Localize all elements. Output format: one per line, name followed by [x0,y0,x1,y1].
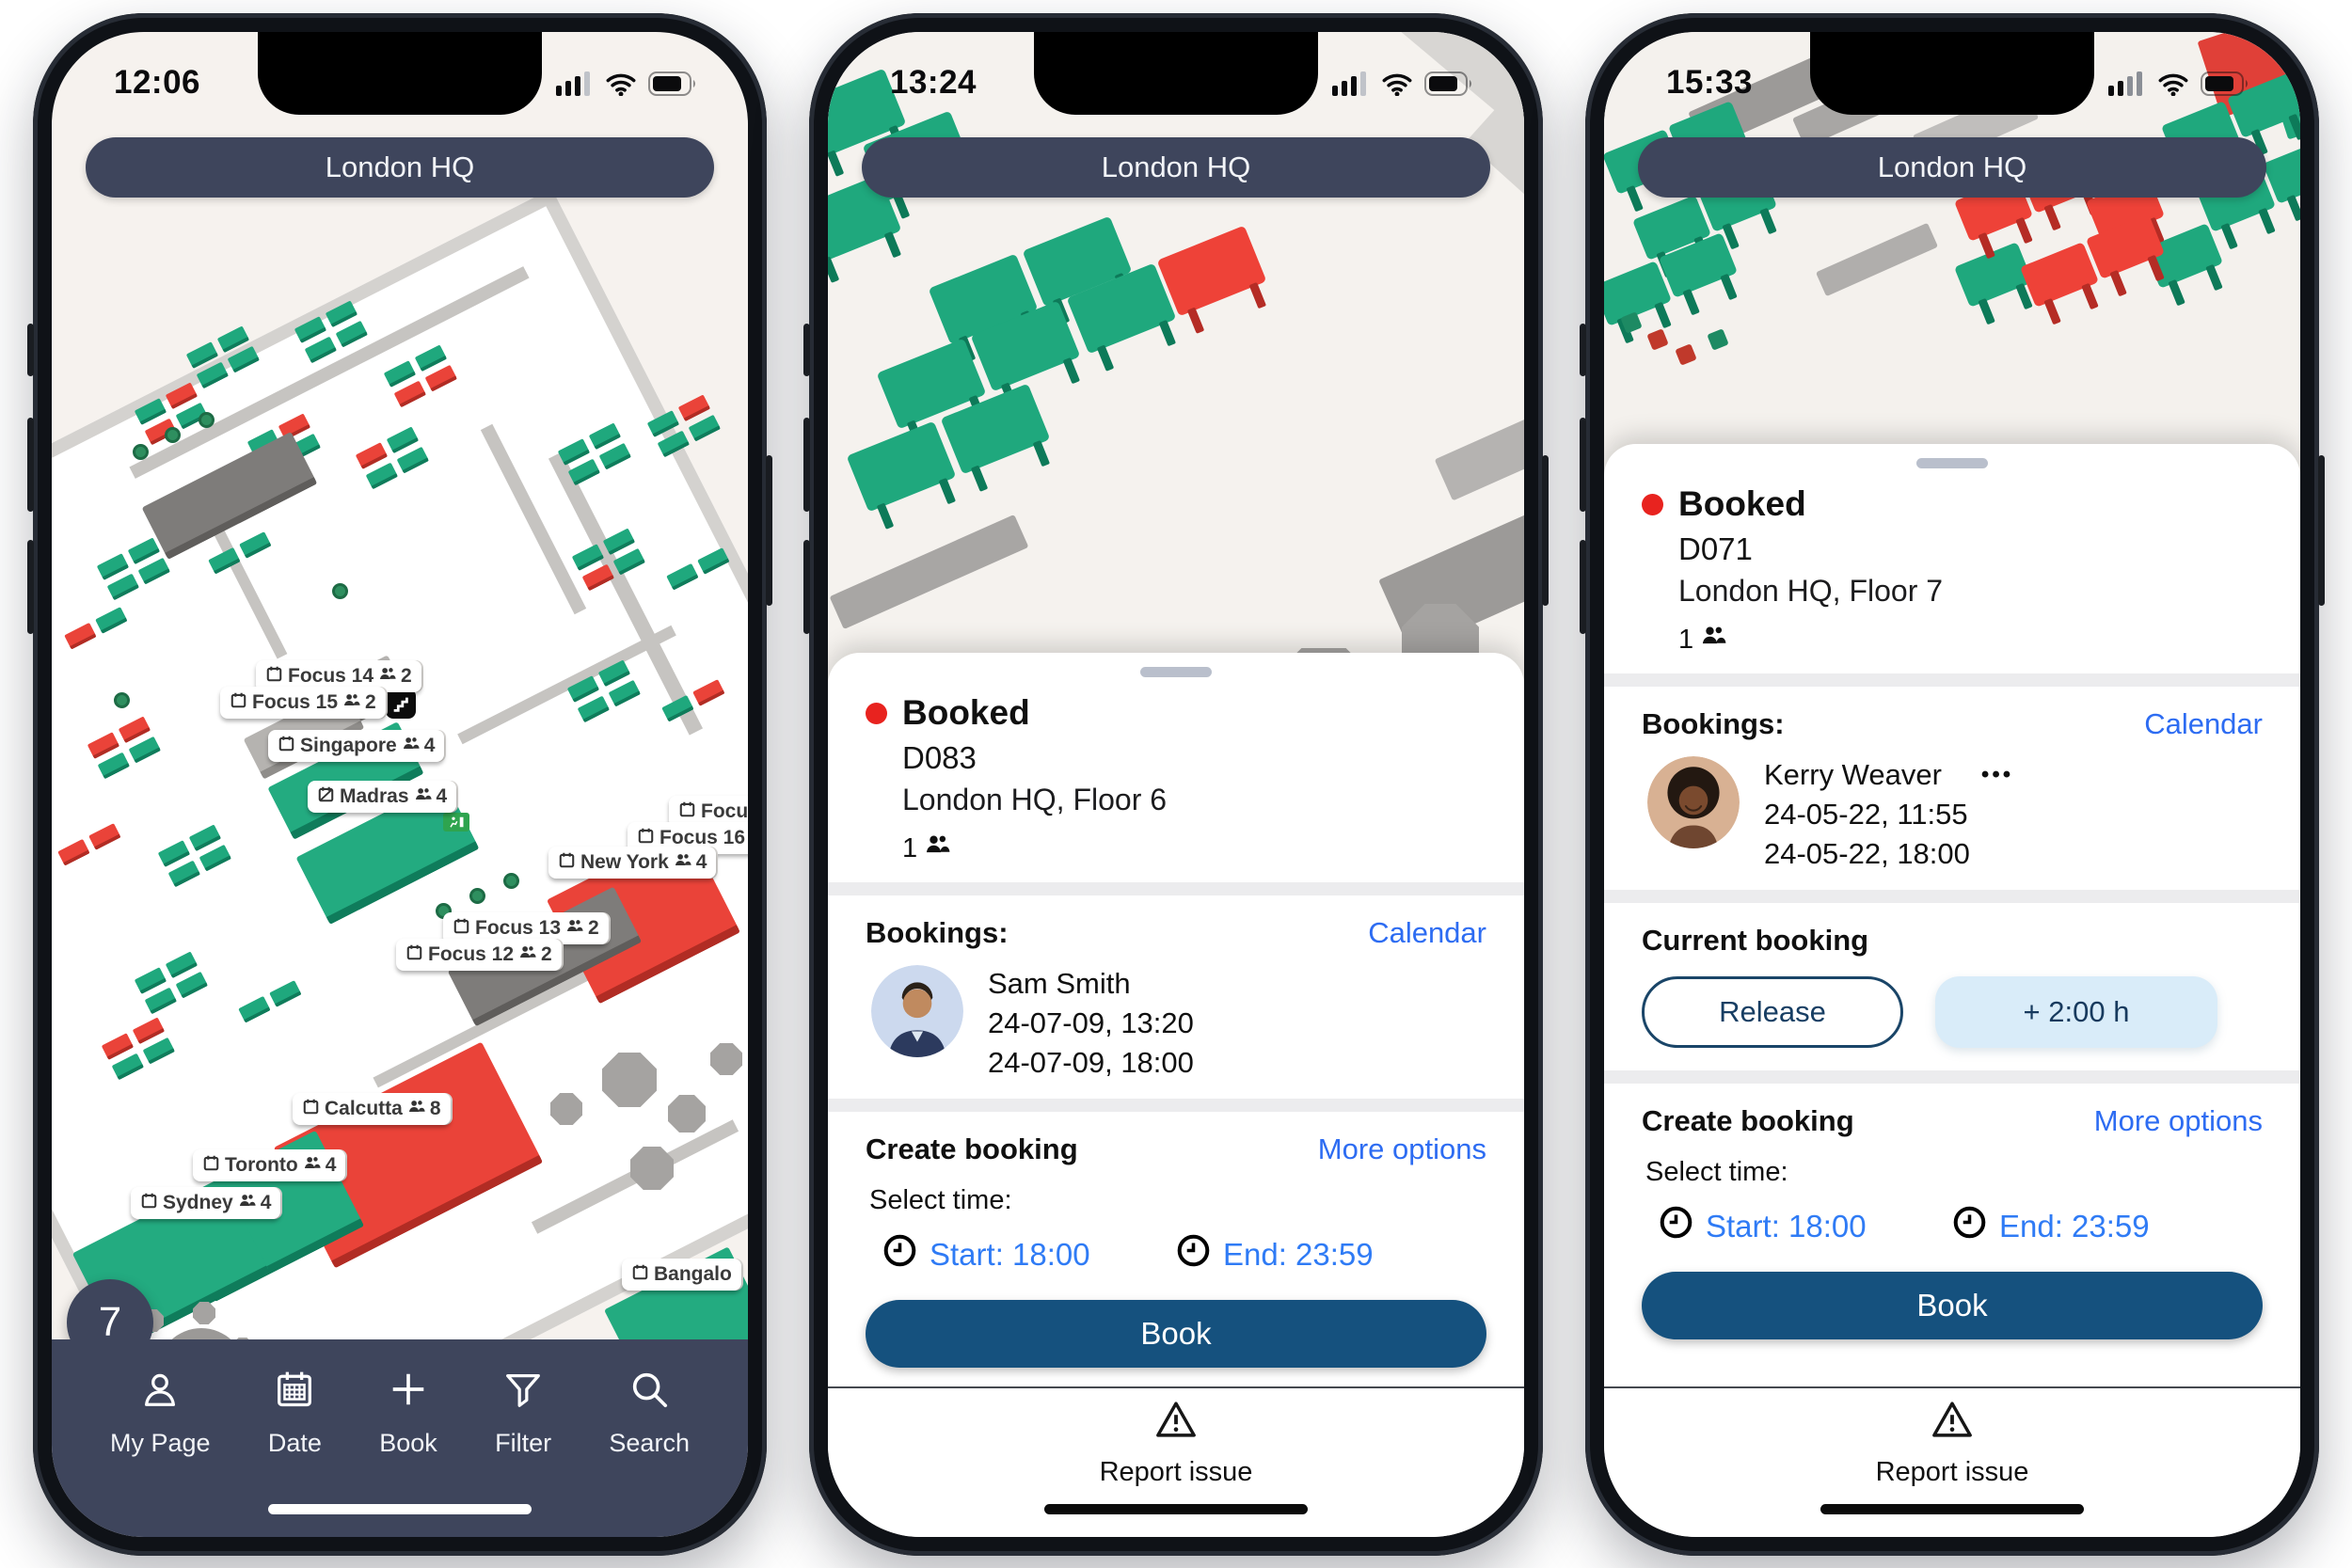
battery-icon [2201,71,2251,101]
volume-up-button [803,418,810,512]
map-label-bangalo[interactable]: Bangalo [622,1259,741,1291]
room-name: Calcutta [325,1098,403,1120]
map-label-focus-12[interactable]: Focus 122 [396,939,562,971]
room-name: Bangalo [654,1263,732,1286]
warning-icon [1154,1398,1198,1446]
section-divider [1604,673,2300,687]
home-indicator[interactable] [1044,1504,1308,1514]
room-name: Madras [340,785,409,808]
calendar-icon [230,691,247,715]
release-button[interactable]: Release [1642,976,1903,1048]
chair [1707,328,1728,350]
nav-item-book[interactable]: Book [379,1368,437,1458]
people-icon [674,851,691,875]
battery-icon [1424,71,1475,101]
plant [503,873,519,889]
plant [114,692,130,708]
section-divider [828,1099,1524,1112]
plant [199,412,215,428]
people-icon [924,832,950,865]
desk[interactable] [366,463,398,490]
plant [165,427,181,443]
room-capacity: 4 [424,735,436,757]
create-booking-section: Create booking More options Select time:… [828,1112,1524,1368]
room-capacity: 4 [696,851,707,874]
mute-switch [1580,324,1586,376]
create-booking-title: Create booking [1642,1104,1854,1138]
desk[interactable] [613,548,645,576]
status-bar: 15:33 [1604,32,2300,135]
extend-2h-button[interactable]: + 2:00 h [1935,976,2217,1048]
desk-capacity: 1 [1642,623,2263,657]
room-name: Sydney [163,1192,233,1214]
map-label-toronto[interactable]: Toronto4 [193,1149,345,1181]
screenshot-stage: Focus 142Focus 152Singapore4Madras4Focus… [0,0,2352,1568]
people-icon [342,691,360,715]
status-dot [866,703,887,724]
calendar-icon [265,665,283,689]
power-button [766,455,772,606]
bookings-section: Bookings: Calendar Kerry Weaver ••• 24-0… [1604,687,2300,890]
nav-label: Book [379,1429,437,1458]
bench [1816,223,1938,296]
room-capacity: 4 [437,785,448,808]
floorplan-map[interactable]: Focus 142Focus 152Singapore4Madras4Focus… [52,32,748,1537]
desk[interactable] [689,415,721,442]
calendar-icon [558,851,576,875]
section-divider [828,882,1524,895]
calendar-icon [631,1263,649,1287]
signal-icon [556,71,594,101]
location-pill[interactable]: London HQ [86,137,714,198]
desk[interactable] [1157,226,1267,317]
status-label: Booked [902,693,1030,733]
desk[interactable] [176,972,208,999]
calendar-icon [302,1098,320,1121]
clock-icon [1659,1205,1693,1247]
emergency-exit-icon [443,813,469,832]
nav-item-date[interactable]: Date [268,1368,322,1458]
end-time-picker[interactable]: End: 23:59 [1952,1205,2263,1247]
desk[interactable] [578,696,610,723]
desk-details-sheet: Booked D083 London HQ, Floor 6 1 Booking… [828,653,1524,1537]
nav-item-my-page[interactable]: My Page [110,1368,211,1458]
calendar-crossed-icon [317,785,335,809]
map-label-new-york[interactable]: New York4 [548,847,716,879]
volume-up-button [27,418,34,512]
more-options-link[interactable]: More options [1318,1132,1486,1166]
volume-down-button [803,540,810,634]
iphone-mockup-2: Booked D083 London HQ, Floor 6 1 Booking… [809,13,1543,1556]
current-booking-section: Current booking Release + 2:00 h [1604,903,2300,1070]
mute-switch [803,324,810,376]
room-capacity: 8 [430,1098,441,1120]
desk-capacity: 1 [866,832,1486,865]
calendar-icon [278,735,295,758]
search-icon [628,1368,671,1418]
chair [1675,343,1696,365]
desk[interactable] [168,861,200,888]
plus-icon [387,1368,430,1418]
drag-handle[interactable] [1916,458,1988,468]
desk-location: London HQ, Floor 7 [1642,574,2263,609]
bookings-title: Bookings: [1642,707,1785,741]
screen-3: Booked D071 London HQ, Floor 7 1 Booking… [1604,32,2300,1537]
desk[interactable] [2020,242,2099,308]
calendar-icon [273,1368,316,1418]
desk[interactable] [107,574,139,601]
desk[interactable] [394,381,426,408]
map-label-madras[interactable]: Madras4 [308,781,456,813]
iphone-mockup-1: Focus 142Focus 152Singapore4Madras4Focus… [33,13,767,1556]
people-icon [402,735,420,758]
desk[interactable] [143,1037,175,1065]
person-icon [138,1368,182,1418]
desk-status-section: Booked D083 London HQ, Floor 6 1 [828,677,1524,882]
desk[interactable] [582,564,614,592]
clock-icon [882,1233,917,1275]
stairs-icon [386,689,416,719]
desk[interactable] [397,447,429,474]
power-button [1542,455,1549,606]
calendar-icon [678,800,696,824]
location-pill[interactable]: London HQ [862,137,1490,198]
status-time: 12:06 [114,64,200,102]
map-label-calcutta[interactable]: Calcutta8 [293,1093,451,1125]
booking-end: 24-07-09, 18:00 [988,1046,1194,1080]
signal-icon [1332,71,1370,101]
desk[interactable] [305,337,337,364]
people-icon [407,1098,425,1121]
iphone-mockup-3: Booked D071 London HQ, Floor 7 1 Booking… [1585,13,2319,1556]
volume-down-button [27,540,34,634]
nav-label: My Page [110,1429,211,1458]
create-booking-section: Create booking More options Select time:… [1604,1084,2300,1339]
nav-label: Date [268,1429,322,1458]
room-name: Focus 13 [475,917,561,940]
wifi-icon [1380,71,1414,101]
volume-up-button [1580,418,1586,512]
room-name: Focus 12 [428,943,514,966]
room-capacity: 4 [326,1154,337,1177]
report-issue[interactable]: Report issue [1604,1398,2300,1488]
drag-handle[interactable] [1140,667,1212,677]
avatar [1647,756,1740,848]
end-time-picker[interactable]: End: 23:59 [1176,1233,1486,1275]
plant [332,583,348,599]
desk[interactable] [425,365,457,392]
screen-2: Booked D083 London HQ, Floor 6 1 Booking… [828,32,1524,1537]
bookings-section: Bookings: Calendar Sam Smith 24-07-09, 1… [828,895,1524,1099]
desk-location: London HQ, Floor 6 [866,783,1486,817]
home-indicator[interactable] [1820,1504,2084,1514]
status-time: 13:24 [890,64,977,102]
calendar-link[interactable]: Calendar [1368,916,1486,950]
people-icon [238,1192,256,1215]
start-time-picker[interactable]: Start: 18:00 [1642,1205,1952,1247]
room-capacity: 4 [261,1192,272,1214]
desk[interactable] [568,459,600,486]
booker-name: Sam Smith [988,967,1131,1001]
signal-icon [2108,71,2146,101]
calendar-icon [140,1192,158,1215]
nav-item-search[interactable]: Search [609,1368,690,1458]
create-booking-title: Create booking [866,1132,1078,1166]
people-icon [518,943,536,967]
bench [830,515,1029,629]
booking-end: 24-05-22, 18:00 [1764,837,2013,871]
room-name: Focus 14 [288,665,373,688]
filter-icon [501,1368,545,1418]
book-button[interactable]: Book [866,1300,1486,1368]
chair [1646,328,1668,350]
warning-icon [1931,1398,1974,1446]
pouf [668,1095,706,1132]
desk[interactable] [199,845,231,872]
people-icon [378,665,396,689]
map-label-singapore[interactable]: Singapore4 [268,730,444,762]
footer-divider [1604,1386,2300,1388]
battery-icon [648,71,699,101]
map-label-sydney[interactable]: Sydney4 [131,1187,280,1219]
status-bar: 12:06 [52,32,748,135]
calendar-icon [453,917,470,941]
desk[interactable] [658,431,690,458]
desk[interactable] [129,736,161,764]
people-icon [414,785,432,809]
nav-label: Search [609,1429,690,1458]
room-capacity: 2 [401,665,412,688]
calendar-link[interactable]: Calendar [2144,707,2263,741]
nav-item-filter[interactable]: Filter [495,1368,551,1458]
booking-menu-ellipsis[interactable]: ••• [1981,762,2013,788]
book-button[interactable]: Book [1642,1272,2263,1339]
more-options-link[interactable]: More options [2094,1104,2263,1138]
clock-icon [1952,1205,1987,1247]
start-time-picker[interactable]: Start: 18:00 [866,1233,1176,1275]
desk[interactable] [138,558,170,585]
select-time-label: Select time: [866,1185,1486,1216]
desk-id: D071 [1642,531,2263,567]
status-label: Booked [1678,484,1806,524]
wifi-icon [604,71,638,101]
calendar-icon [405,943,423,967]
section-divider [1604,1070,2300,1084]
room-name: Singapore [300,735,397,757]
footer-divider [828,1386,1524,1388]
desk[interactable] [599,443,631,470]
pouf [630,1147,674,1190]
room-name: Focus 1 [701,800,748,823]
desk-details-sheet: Booked D071 London HQ, Floor 7 1 Booking… [1604,444,2300,1537]
calendar-icon [202,1154,220,1178]
booking-row[interactable]: Kerry Weaver ••• 24-05-22, 11:55 24-05-2… [1642,756,2263,890]
desk[interactable] [336,321,368,348]
booking-start: 24-07-09, 13:20 [988,1006,1194,1040]
desk[interactable] [112,1053,144,1081]
people-icon [565,917,583,941]
room-capacity: 2 [588,917,599,940]
report-issue[interactable]: Report issue [828,1398,1524,1488]
people-icon [303,1154,321,1178]
plant [469,888,485,904]
desk-id: D083 [866,740,1486,776]
desk[interactable] [847,421,957,513]
bench [1435,403,1524,501]
mute-switch [27,324,34,376]
room-name: Toronto [225,1154,298,1177]
volume-down-button [1580,540,1586,634]
room-name: Focus 15 [252,691,338,714]
status-time: 15:33 [1666,64,1753,102]
desk[interactable] [228,346,260,373]
location-pill[interactable]: London HQ [1638,137,2266,198]
screen-1: Focus 142Focus 152Singapore4Madras4Focus… [52,32,748,1537]
desk[interactable] [98,752,130,780]
select-time-label: Select time: [1642,1157,2263,1188]
room-capacity: 2 [541,943,552,966]
current-booking-title: Current booking [1642,924,1868,958]
booking-row[interactable]: Sam Smith 24-07-09, 13:20 24-07-09, 18:0… [866,965,1486,1099]
room-capacity: 2 [365,691,376,714]
clock-icon [1176,1233,1211,1275]
status-dot [1642,494,1663,515]
status-bar: 13:24 [828,32,1524,135]
home-indicator[interactable] [268,1504,532,1514]
avatar [871,965,963,1057]
desk[interactable] [197,362,229,389]
desk[interactable] [609,680,641,707]
plant [133,444,149,460]
wifi-icon [2156,71,2190,101]
power-button [2318,455,2325,606]
nav-label: Filter [495,1429,551,1458]
booker-name: Kerry Weaver [1764,758,1942,792]
desk[interactable] [145,988,177,1015]
desk-status-section: Booked D071 London HQ, Floor 7 1 [1604,468,2300,673]
bookings-title: Bookings: [866,916,1009,950]
section-divider [1604,890,2300,903]
room-name: New York [580,851,669,874]
booking-start: 24-05-22, 11:55 [1764,798,2013,832]
map-label-focus-15[interactable]: Focus 152 [220,687,386,719]
people-icon [1700,623,1726,657]
